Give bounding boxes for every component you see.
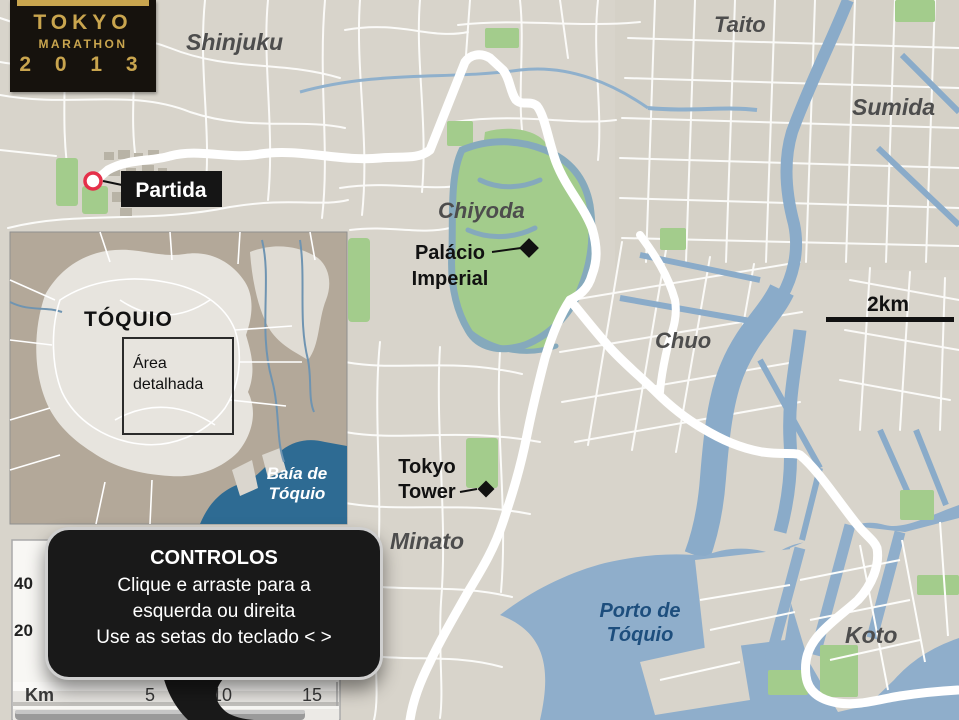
district-label-sumida: Sumida <box>852 94 935 120</box>
district-label-shinjuku: Shinjuku <box>186 29 283 55</box>
inset-bay-label-line1: Baía de <box>267 464 327 483</box>
palace-label-line1: Palácio <box>415 242 485 264</box>
elevation-ytick-40: 40 <box>14 574 33 593</box>
tower-label-line2: Tower <box>398 481 456 503</box>
logo-subtitle: MARATHON <box>10 37 156 51</box>
inset-title: TÓQUIO <box>84 307 173 331</box>
logo-title: TOKYO <box>10 11 156 35</box>
scale-label: 2km <box>867 293 909 316</box>
elevation-ytick-20: 20 <box>14 621 33 640</box>
controls-tooltip-line3: Use as setas do teclado < > <box>58 625 370 651</box>
tower-label-line1: Tokyo <box>398 456 455 478</box>
port-label-line1: Porto de <box>599 600 680 622</box>
controls-tooltip-line2: esquerda ou direita <box>58 599 370 625</box>
controls-tooltip: CONTROLOS Clique e arraste para a esquer… <box>45 527 383 680</box>
district-label-taito: Taito <box>714 12 766 37</box>
inset-map: TÓQUIO Área detalhada Baía de Tóquio <box>10 232 347 524</box>
controls-tooltip-title: CONTROLOS <box>58 547 370 570</box>
port-label-line2: Tóquio <box>607 624 674 646</box>
district-label-chiyoda: Chiyoda <box>438 198 525 223</box>
inset-area-line1: Área <box>133 353 167 372</box>
start-point-icon[interactable] <box>85 173 101 189</box>
inset-bay-label-line2: Tóquio <box>269 484 326 503</box>
elevation-x-unit: Km <box>25 685 54 705</box>
inset-area-line2: detalhada <box>133 376 203 393</box>
elevation-xtick-15: 15 <box>302 685 322 705</box>
logo-year: 2 0 1 3 <box>10 53 156 77</box>
start-label: Partida <box>135 179 207 202</box>
tokyo-marathon-2013-logo: TOKYO MARATHON 2 0 1 3 <box>10 0 156 92</box>
scale-bar <box>826 317 954 322</box>
district-label-minato: Minato <box>390 528 464 554</box>
palace-label-line2: Imperial <box>412 268 489 290</box>
controls-tooltip-line1: Clique e arraste para a <box>58 573 370 599</box>
district-label-koto: Koto <box>845 622 897 648</box>
district-label-chuo: Chuo <box>655 328 711 353</box>
logo-gold-bar <box>17 0 149 6</box>
